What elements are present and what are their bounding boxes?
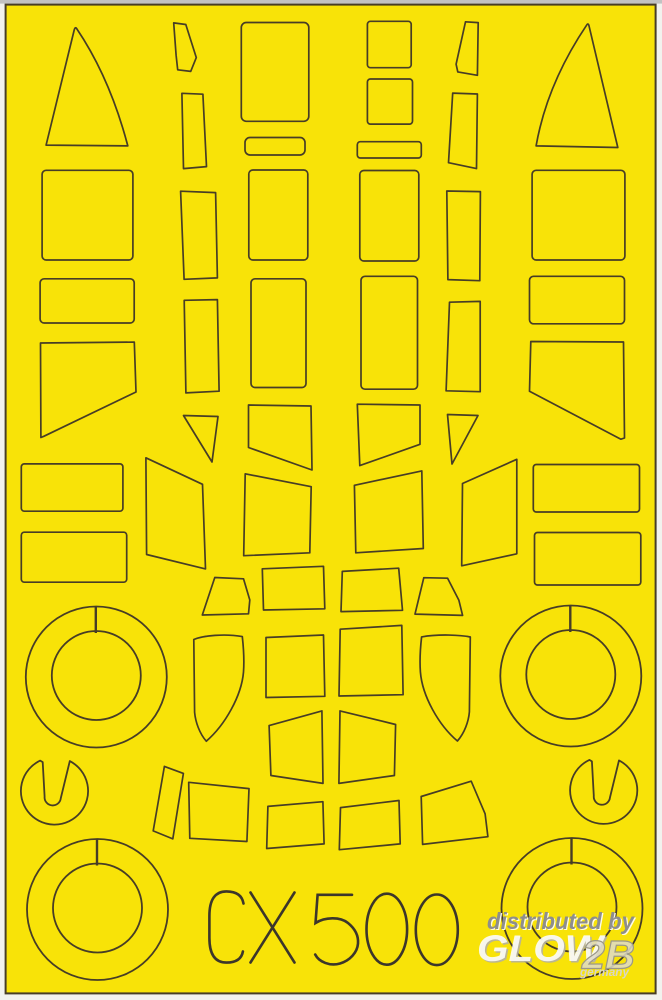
svg-text:germany: germany — [579, 967, 630, 979]
